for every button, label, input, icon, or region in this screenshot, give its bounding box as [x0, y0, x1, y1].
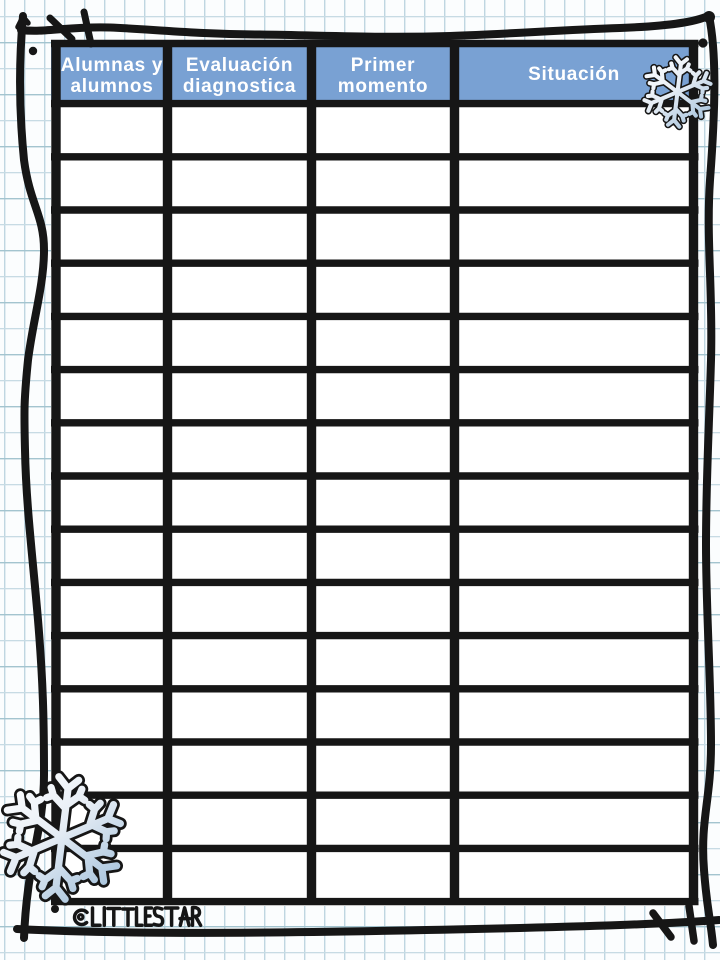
svg-text:alumnos: alumnos [70, 76, 153, 97]
svg-text:diagnostica: diagnostica [183, 76, 296, 97]
svg-text:Evaluación: Evaluación [186, 55, 293, 76]
svg-text:momento: momento [338, 76, 428, 97]
svg-text:Situación: Situación [528, 64, 620, 85]
svg-text:Alumnas y: Alumnas y [61, 55, 163, 76]
svg-text:Primer: Primer [351, 55, 415, 76]
